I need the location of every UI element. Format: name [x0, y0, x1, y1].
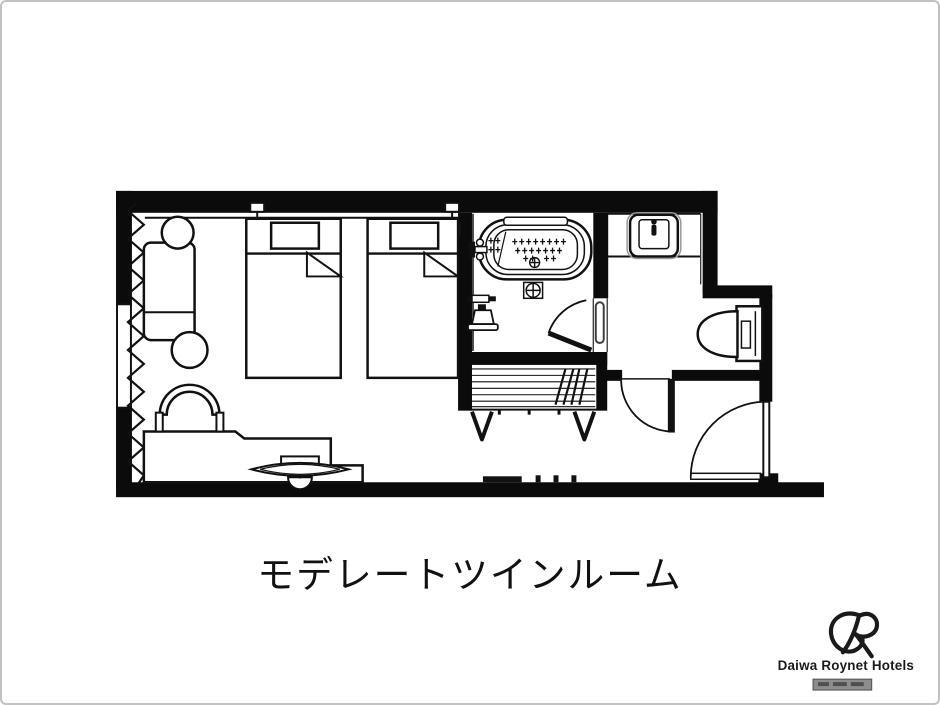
desk: [144, 432, 363, 483]
luggage-bench: [470, 369, 597, 440]
bathtub: [479, 217, 591, 279]
door-threshold: [691, 473, 761, 479]
caption: モデレートツインルーム: [257, 555, 682, 596]
toilet: [698, 306, 763, 361]
bench-leg-left: [472, 412, 492, 440]
wall-bathroom-right: [593, 213, 608, 299]
pillow-icon: [390, 223, 438, 249]
door-leaf: [549, 333, 592, 350]
door-swing-arc: [549, 300, 587, 333]
wall-vent-marks: [483, 475, 576, 482]
door-swing-arc: [621, 381, 671, 432]
bathroom-door: [549, 298, 608, 352]
window: [117, 304, 131, 407]
logo-monogram-icon: [831, 614, 877, 657]
brand-name: Daiwa Roynet Hotels: [778, 658, 914, 673]
wall-left-lower: [116, 406, 132, 488]
sofa: [144, 243, 195, 340]
twin-bed-2: [368, 219, 458, 378]
round-side-table-bottom: [172, 332, 208, 368]
watermark-bar: [813, 679, 872, 690]
floor-drain-icon: [524, 282, 543, 298]
wall-bench-top: [458, 352, 607, 365]
wall-top: [116, 191, 718, 213]
round-side-table-top: [162, 217, 194, 249]
door-swing-arc: [691, 402, 767, 478]
wall-east-upper: [703, 191, 718, 294]
entrance-door: [691, 402, 770, 480]
bench-hatch: [556, 369, 588, 405]
bench-leg-right: [574, 412, 594, 440]
logo: Daiwa Roynet Hotels: [778, 614, 914, 690]
door-handle-icon: [596, 302, 604, 343]
basin-faucet-icon: [651, 219, 657, 225]
wall-bench-right: [596, 352, 607, 411]
bench-slats: [472, 369, 595, 407]
tub-rim: [504, 217, 568, 225]
washbasin: [627, 213, 681, 259]
wall-partition-right: [672, 370, 764, 381]
floor-plan-svg: モデレートツインルーム Daiwa Roynet Hotels: [2, 2, 938, 703]
floor-plan-image: モデレートツインルーム Daiwa Roynet Hotels: [0, 0, 940, 705]
wall-bottom: [116, 482, 824, 497]
toilet-bowl: [698, 311, 738, 357]
sofa-set: [144, 217, 208, 368]
door-leaf: [763, 402, 769, 478]
door-leaf: [668, 379, 675, 433]
wall-partition-stub: [602, 370, 622, 381]
tub-drain-icon: [530, 258, 540, 268]
twin-bed-1: [246, 219, 340, 378]
pillow-icon: [271, 223, 319, 249]
hand-shower-icon: [468, 295, 498, 330]
toilet-door: [621, 379, 675, 433]
desk-chair: [156, 385, 224, 432]
